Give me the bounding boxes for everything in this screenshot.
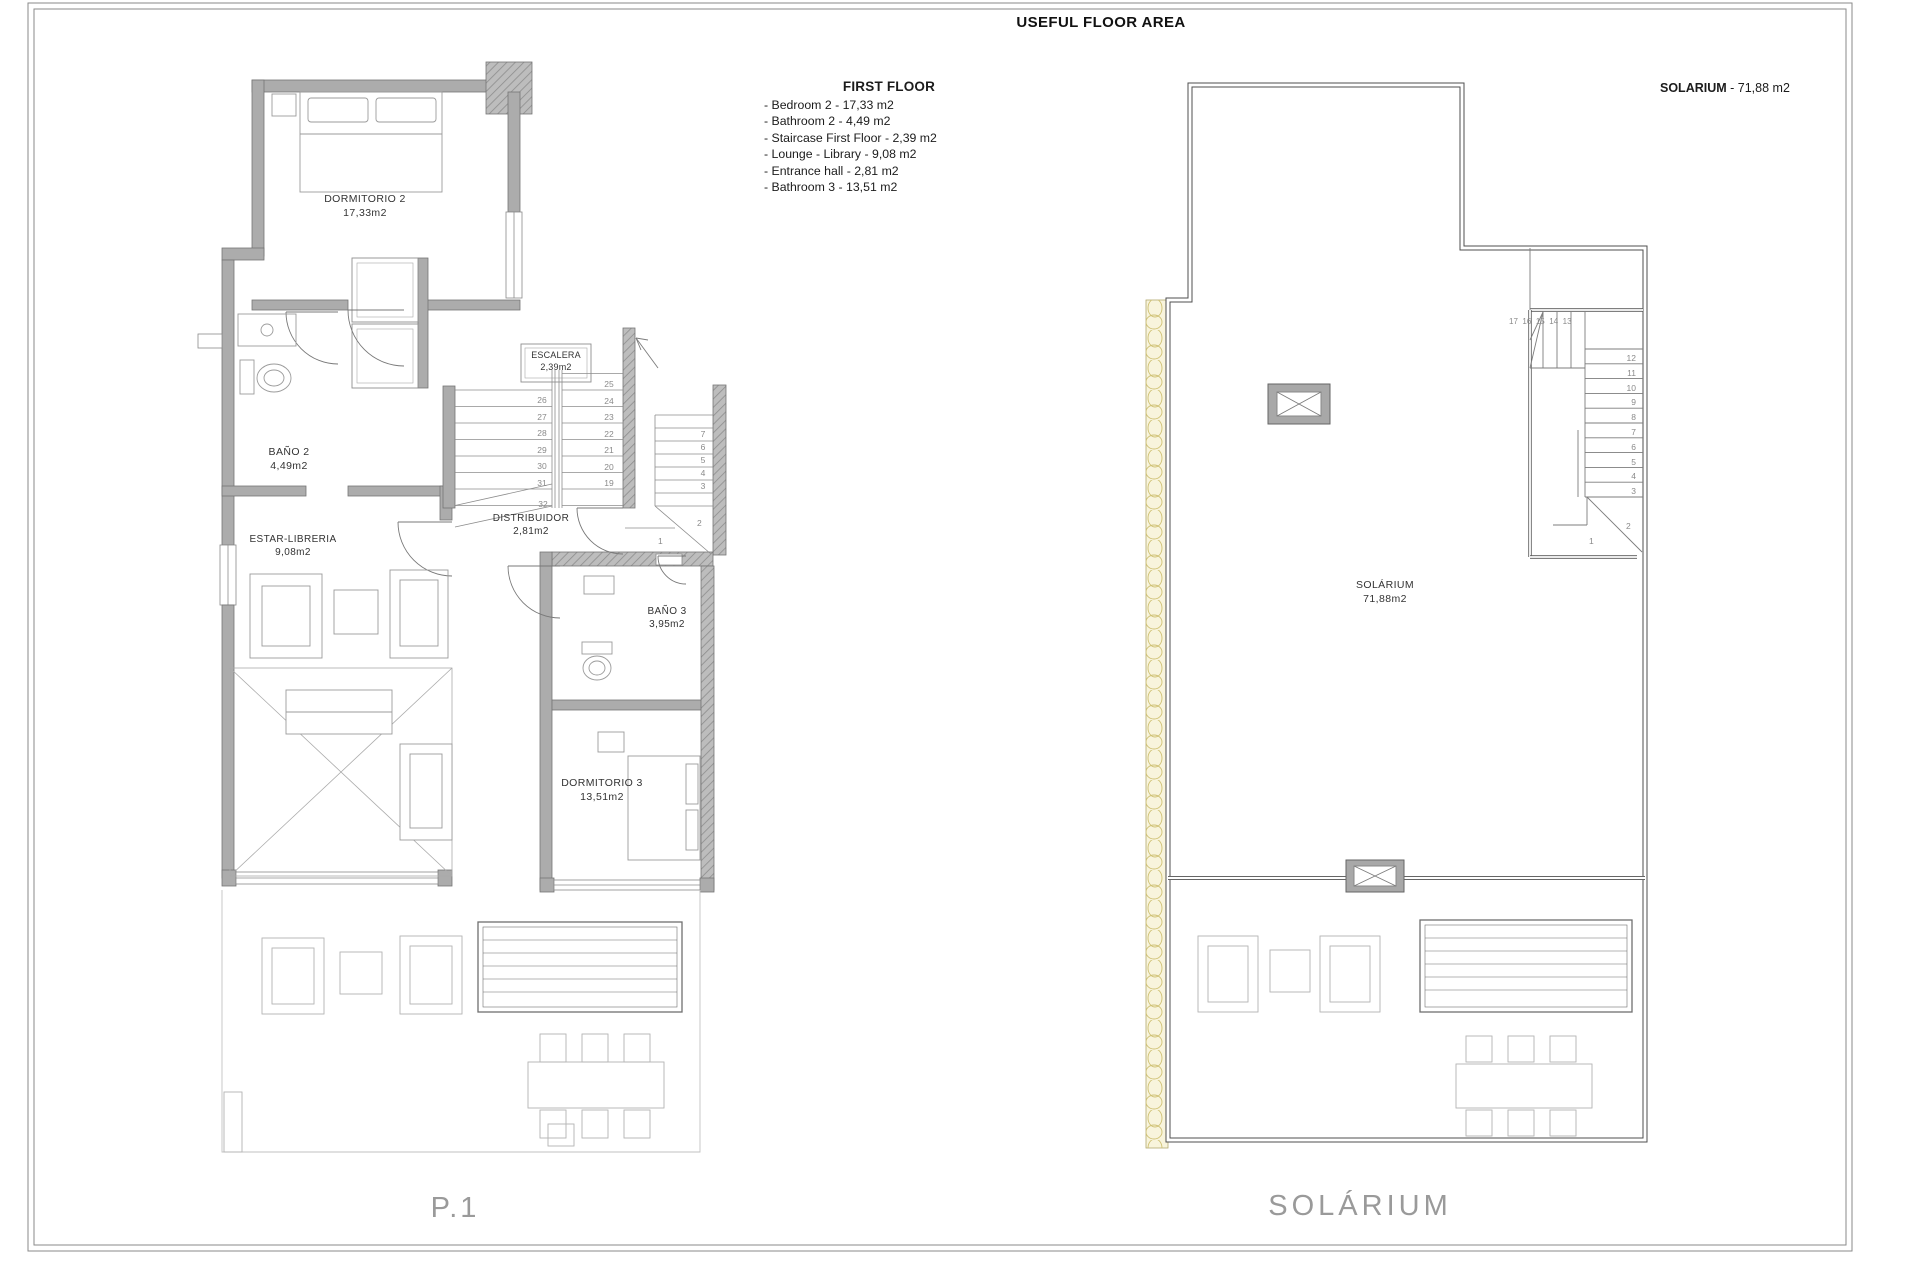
stair-number: 30 <box>534 458 550 475</box>
stair-number: 4 <box>695 467 711 480</box>
solarium-area-note: SOLARIUM - 71,88 m2 <box>1660 81 1790 95</box>
skylight <box>1346 860 1404 892</box>
stair-number: 5 <box>1620 455 1636 470</box>
stair-number: 9 <box>1620 395 1636 410</box>
stair-number: 17 <box>1509 317 1518 326</box>
solarium-note-label: SOLARIUM <box>1660 81 1727 95</box>
stair-number: 19 <box>601 475 617 492</box>
stair-numbers-down-col: 1211109876543 <box>1620 351 1636 499</box>
room-label-bano3: BAÑO 33,95m2 <box>647 605 686 631</box>
page-title: USEFUL FLOOR AREA <box>1016 14 1185 31</box>
stair-numbers-flight-a: 262728293031 <box>534 392 550 491</box>
room-label-dormitorio3: DORMITORIO 313,51m2 <box>561 777 643 804</box>
stair-number-32: 32 <box>535 499 551 509</box>
room-label-estar-libreria: ESTAR-LIBRERIA9,08m2 <box>249 533 336 559</box>
drawing-sheet: USEFUL FLOOR AREA FIRST FLOOR - Bedroom … <box>0 0 1920 1280</box>
stair-numbers-flight-b: 25242322212019 <box>601 376 617 492</box>
stair-number: 12 <box>1620 351 1636 366</box>
stair-number: 11 <box>1620 366 1636 381</box>
stair-number: 23 <box>601 409 617 426</box>
stair-number: 22 <box>601 426 617 443</box>
stair-number: 6 <box>695 441 711 454</box>
legend-item: - Staircase First Floor - 2,39 m2 <box>764 130 1014 146</box>
stair-numbers-flight-c: 76543 <box>695 428 711 493</box>
room-label-dormitorio2: DORMITORIO 217,33m2 <box>324 193 406 220</box>
stair-number: 15 <box>1536 317 1545 326</box>
stair-number: 7 <box>1620 425 1636 440</box>
stair-number: 13 <box>1563 317 1572 326</box>
room-label-escalera: ESCALERA2,39m2 <box>531 350 581 373</box>
stair-number: 8 <box>1620 410 1636 425</box>
stair-numbers-top-row: 1716151413 <box>1509 317 1572 326</box>
stair-number: 16 <box>1522 317 1531 326</box>
legend-item: - Bathroom 2 - 4,49 m2 <box>764 113 1014 129</box>
legend-item: - Bedroom 2 - 17,33 m2 <box>764 97 1014 113</box>
stair-number: 5 <box>695 454 711 467</box>
stair-number: 28 <box>534 425 550 442</box>
stair-number: 6 <box>1620 440 1636 455</box>
stair-number: 31 <box>534 475 550 492</box>
stair-number: 3 <box>695 480 711 493</box>
skylight <box>1268 384 1330 424</box>
solarium-note-value: - 71,88 m2 <box>1727 81 1790 95</box>
stair-number: 3 <box>1620 484 1636 499</box>
stair-number: 14 <box>1549 317 1558 326</box>
room-label-solarium: SOLÁRIUM71,88m2 <box>1356 579 1414 606</box>
stair-number: 4 <box>1620 469 1636 484</box>
solarium-terrace <box>1198 920 1632 1136</box>
area-legend: FIRST FLOOR - Bedroom 2 - 17,33 m2 - Bat… <box>764 79 1014 195</box>
stair-number: 25 <box>601 376 617 393</box>
stair-number: 24 <box>601 393 617 410</box>
room-label-bano2: BAÑO 24,49m2 <box>269 446 310 473</box>
stair-number-2: 2 <box>1626 521 1631 531</box>
stair-number: 29 <box>534 442 550 459</box>
legend-item: - Entrance hall - 2,81 m2 <box>764 163 1014 179</box>
first-floor-walls <box>198 62 726 892</box>
stair-number-1: 1 <box>658 536 663 546</box>
stair-number: 7 <box>695 428 711 441</box>
stair-number-2: 2 <box>697 518 702 528</box>
legend-heading: FIRST FLOOR <box>764 79 1014 94</box>
stair-number: 27 <box>534 409 550 426</box>
caption-solarium: SOLÁRIUM <box>1268 1190 1451 1223</box>
legend-item: - Lounge - Library - 9,08 m2 <box>764 146 1014 162</box>
room-label-distribuidor: DISTRIBUIDOR2,81m2 <box>493 512 569 538</box>
stair-number: 20 <box>601 459 617 476</box>
legend-item: - Bathroom 3 - 13,51 m2 <box>764 179 1014 195</box>
stair-number: 21 <box>601 442 617 459</box>
solarium-plan <box>1146 85 1645 1148</box>
stair-number: 26 <box>534 392 550 409</box>
stair-number-1: 1 <box>1589 536 1594 546</box>
first-floor-terrace <box>222 890 700 1152</box>
stair-number: 10 <box>1620 381 1636 396</box>
caption-p1: P.1 <box>431 1192 480 1225</box>
